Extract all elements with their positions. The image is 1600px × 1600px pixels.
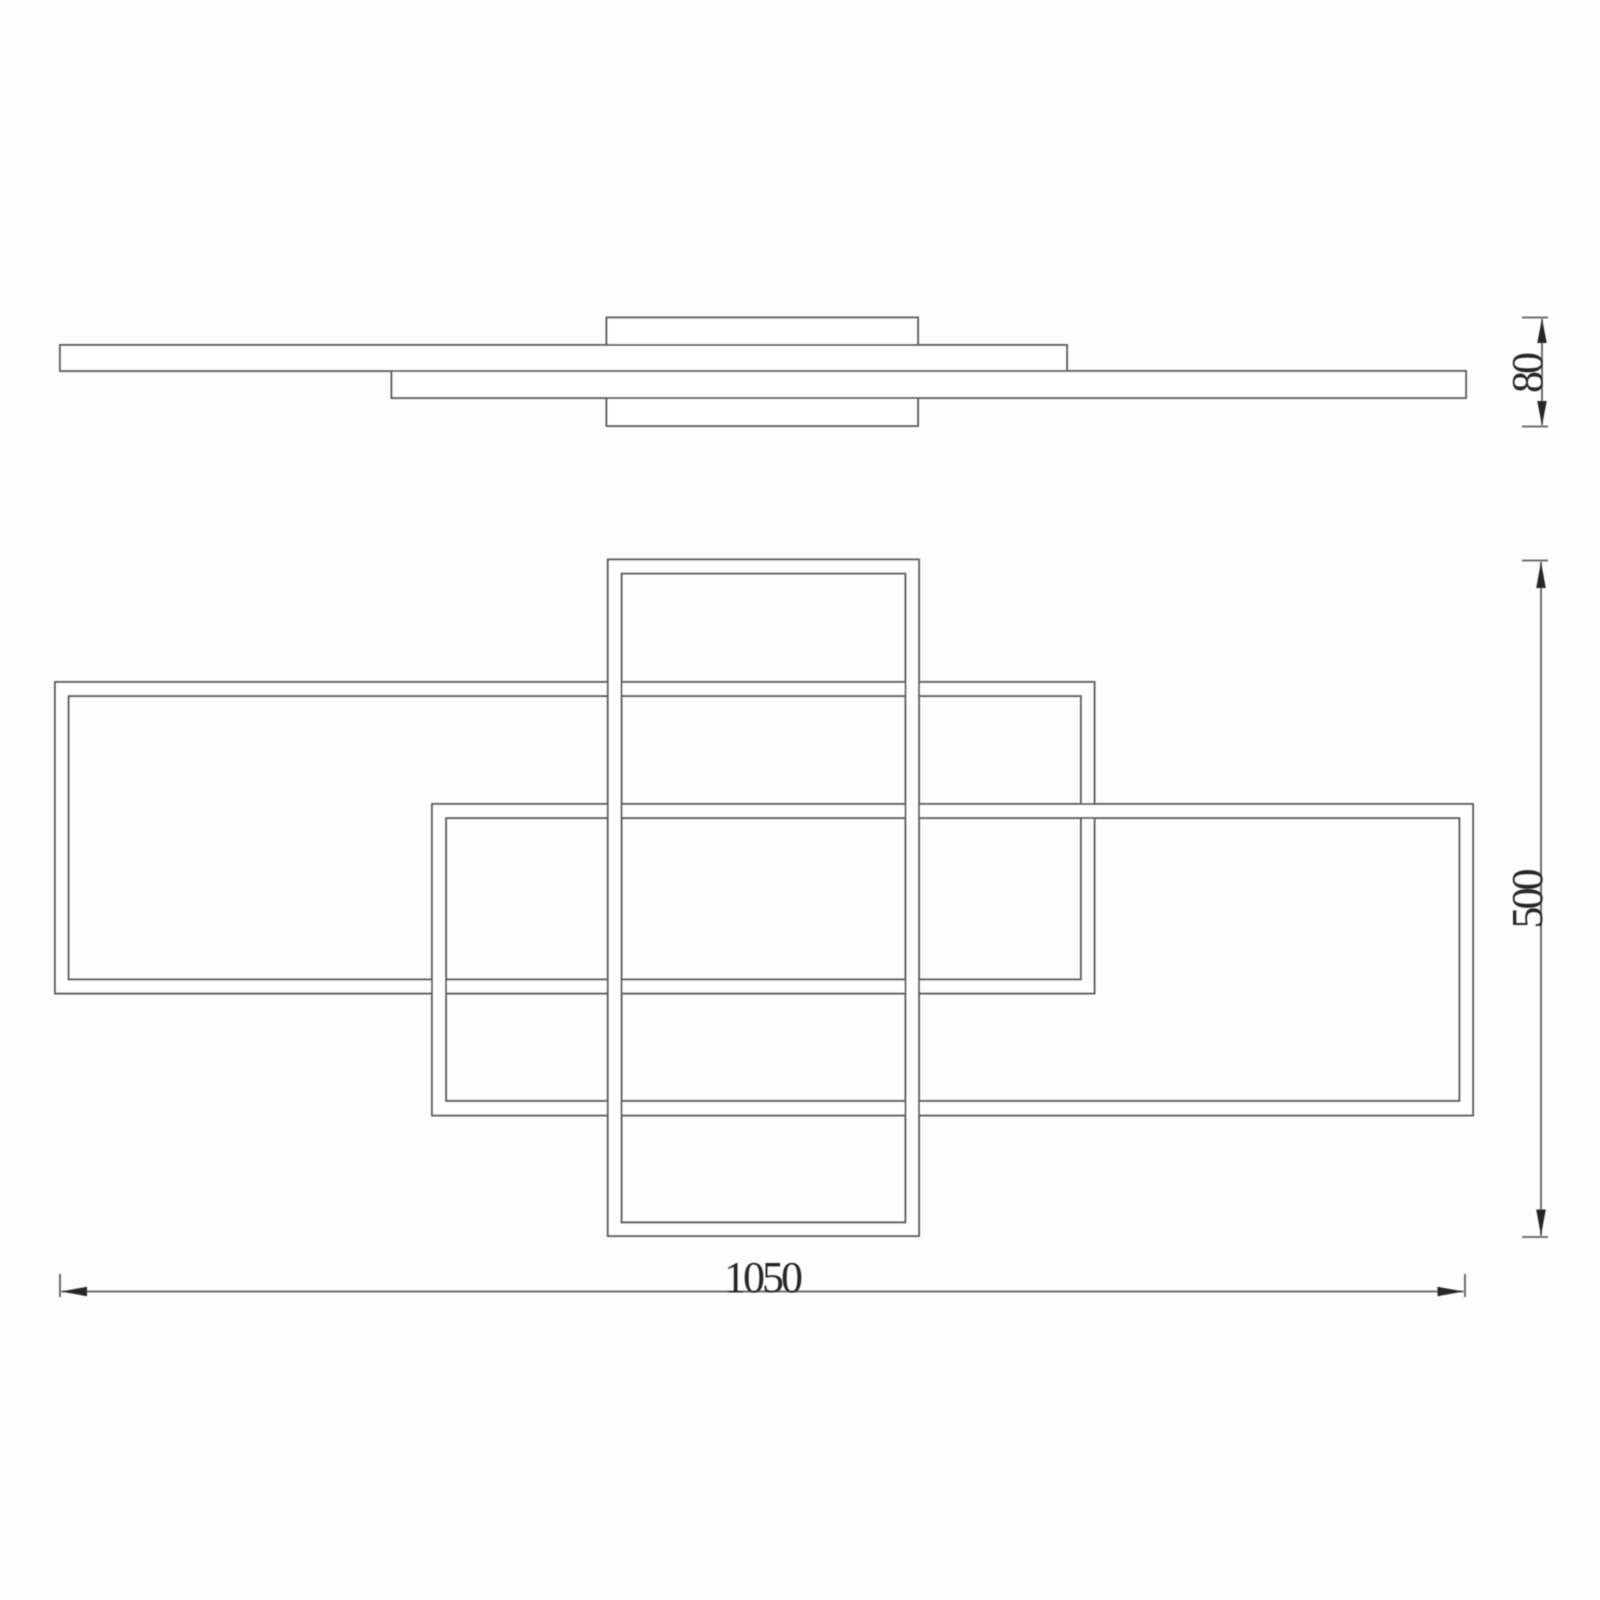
svg-text:500: 500: [1503, 870, 1552, 929]
svg-text:1050: 1050: [724, 1253, 802, 1302]
svg-text:80: 80: [1503, 353, 1552, 393]
